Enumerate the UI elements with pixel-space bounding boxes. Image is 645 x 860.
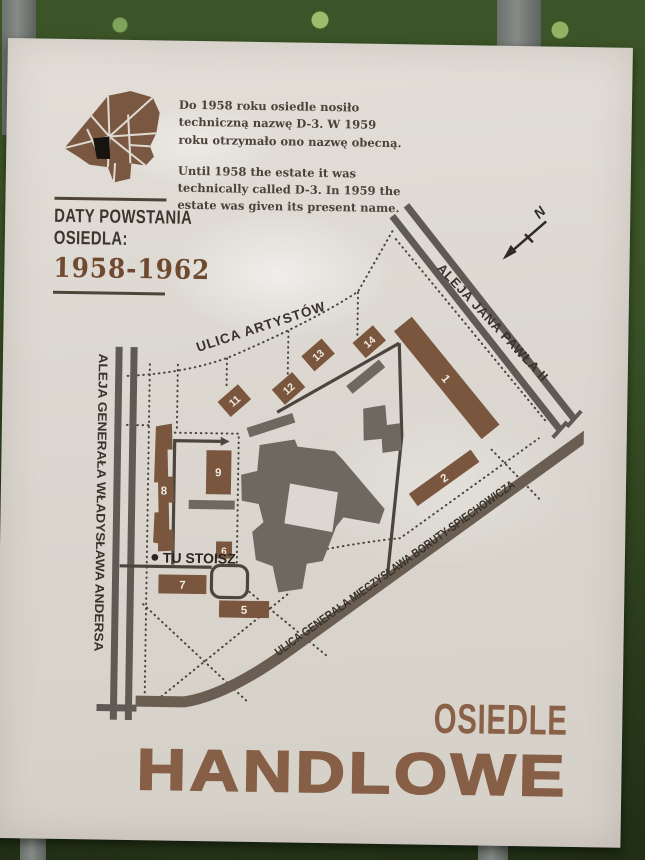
svg-text:7: 7	[179, 580, 186, 592]
building-13: 13	[301, 338, 335, 371]
building-11: 11	[217, 384, 251, 417]
building-gray-bar-3	[189, 500, 235, 510]
building-8: 8	[153, 423, 176, 551]
road-arrow	[221, 437, 230, 446]
estate-title-line2: HANDLOWE	[137, 736, 569, 810]
svg-text:8: 8	[161, 485, 168, 497]
building-7: 7	[158, 574, 206, 594]
svg-text:N: N	[530, 202, 549, 221]
building-9: 9	[206, 450, 232, 494]
photo-background: Do 1958 roku osiedle nosiło techniczną n…	[0, 0, 645, 860]
estate-map: 1 2 5 6 7 8 9	[64, 196, 588, 774]
street-label-andersa: ALEJA GENERAŁA WŁADYSŁAWA ANDERSA	[91, 353, 110, 651]
building-gray-bar-2	[247, 413, 296, 437]
sign-board: Do 1958 roku osiedle nosiło techniczną n…	[0, 38, 633, 848]
building-2: 2	[409, 449, 480, 507]
svg-text:5: 5	[241, 605, 248, 617]
svg-text:9: 9	[215, 467, 222, 479]
building-gray-bar-1	[346, 360, 385, 394]
street-label-jana-pawla: ALEJA JANA PAWŁA II	[434, 261, 551, 385]
north-arrow-icon: N	[503, 202, 550, 261]
building-gray-center	[239, 439, 385, 594]
building-5: 5	[219, 600, 269, 618]
you-are-here-label: TU STOISZ	[163, 549, 237, 566]
info-text-polish: Do 1958 roku osiedle nosiło techniczną n…	[178, 97, 429, 153]
you-are-here-marker: TU STOISZ	[151, 549, 236, 566]
building-gray-north	[363, 405, 403, 454]
district-map-icon	[56, 83, 170, 197]
estate-title-line1: OSIEDLE	[433, 695, 568, 745]
street-label-artystow: ULICA ARTYSTÓW	[194, 299, 327, 355]
turning-loop	[211, 565, 247, 598]
